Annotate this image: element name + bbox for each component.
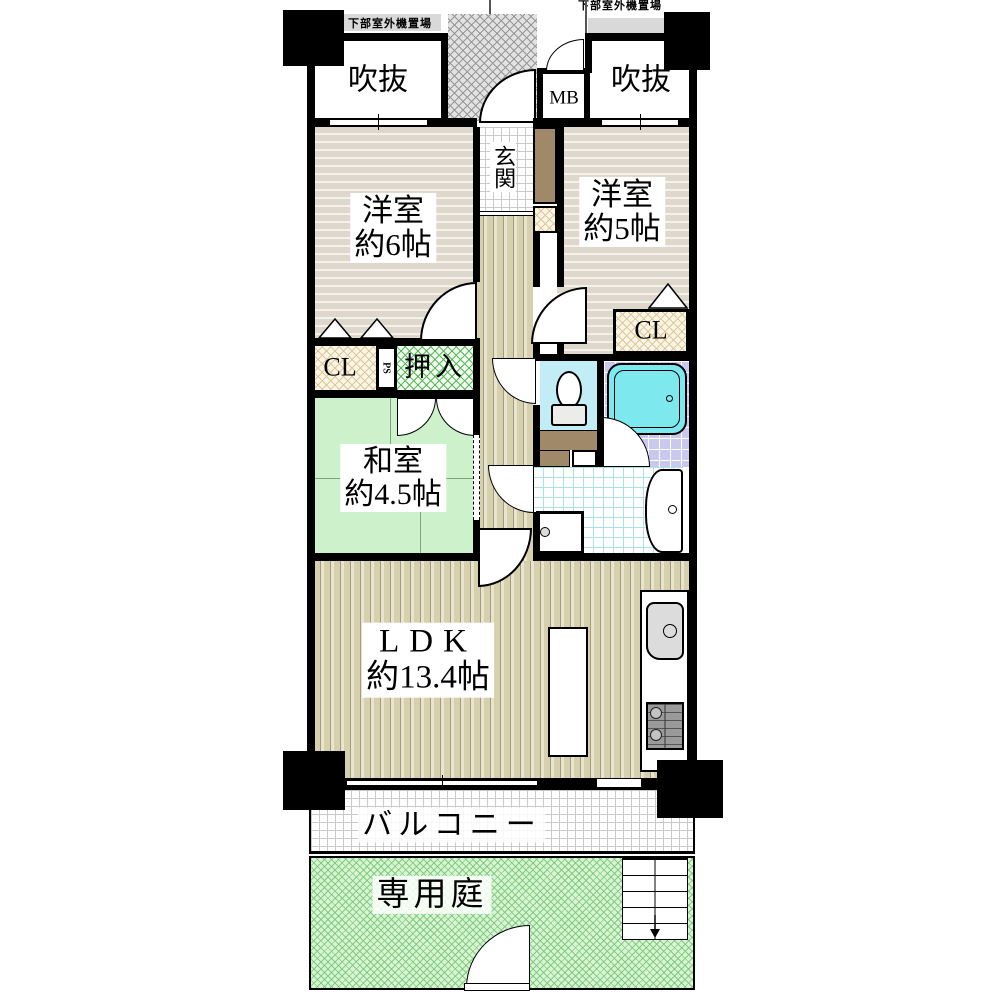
label-western-5-size: 約5帖 (583, 211, 661, 246)
window-tick (378, 114, 379, 130)
pillar (283, 751, 345, 810)
wall (441, 33, 448, 127)
wall (307, 390, 480, 398)
folding-door-triangle (648, 283, 688, 309)
label-void-left: 吹抜 (344, 63, 412, 98)
pillar (664, 12, 710, 70)
stairs-down-arrow (648, 915, 662, 939)
wall (473, 127, 480, 282)
wall (473, 340, 480, 435)
label-western-6-name: 洋室 (362, 193, 424, 228)
wall (307, 553, 480, 561)
folding-door-triangle (360, 318, 394, 339)
pillar (283, 10, 344, 66)
label-closet-left: CL (319, 353, 360, 384)
folding-door-triangle (318, 318, 352, 339)
label-ldk-size: 約13.4帖 (366, 660, 490, 696)
toilet-counter (540, 430, 597, 450)
bathtub-drain (666, 395, 673, 402)
garden-gate-leaf (464, 983, 530, 991)
basin-faucet (668, 505, 677, 514)
label-western-6: 洋室 約6帖 (350, 193, 436, 263)
pillar (657, 760, 723, 818)
label-japanese-size: 約4.5帖 (344, 478, 442, 511)
mb-door-arc (546, 39, 584, 71)
label-japanese-name: 和室 (363, 445, 423, 478)
label-pipe-space: PS (377, 361, 396, 375)
label-closet-right: CL (630, 316, 671, 347)
washer-cabinet-white (572, 450, 597, 467)
kitchen-sink-tap (663, 624, 677, 638)
label-meter-box: MB (545, 88, 583, 111)
label-ldk-name: LDK (379, 624, 477, 660)
label-garden: 専用庭 (373, 876, 492, 914)
wash-basin (645, 469, 683, 553)
japanese-sliding-door (473, 435, 480, 520)
wall-w5-left-upper (557, 127, 564, 287)
w5-left-white-strip (540, 233, 557, 287)
wall (533, 354, 697, 361)
floor-plan: 下部室外機置場 下部室外機置場 MB (0, 0, 1000, 1000)
wall (533, 405, 540, 467)
genkan-step-line (477, 211, 533, 212)
western5-door-arc (531, 287, 587, 344)
label-balcony: バルコニー (358, 808, 545, 843)
wall (307, 33, 315, 790)
kitchen-island-counter (548, 627, 588, 757)
genkan-storage (533, 206, 557, 233)
window-tick (640, 114, 641, 130)
outdoor-unit-note-right: 下部室外機置場 (578, 0, 662, 13)
stove-burner (650, 707, 662, 719)
toilet-tank (551, 404, 587, 426)
label-ldk: LDK 約13.4帖 (362, 623, 494, 698)
label-void-right: 吹抜 (607, 63, 675, 98)
wall (597, 354, 604, 467)
washing-machine-tap (540, 527, 550, 537)
boundary-line (585, 0, 587, 33)
label-entrance: 玄関 (490, 142, 516, 192)
washer-cabinet-brown (537, 450, 570, 467)
shoe-cabinet (533, 127, 557, 204)
balcony-door-gap (597, 779, 641, 787)
wall (533, 233, 540, 287)
label-western-6-size: 約6帖 (354, 227, 432, 262)
wall (533, 553, 697, 561)
outdoor-strip-right (588, 18, 664, 33)
label-oshiire: 押入 (400, 352, 470, 384)
label-western-5: 洋室 約5帖 (579, 177, 665, 247)
label-western-5-name: 洋室 (591, 177, 653, 212)
stove-burner (650, 729, 662, 741)
wall (585, 33, 592, 73)
outdoor-unit-note-left: 下部室外機置場 (348, 15, 432, 31)
wall (689, 33, 697, 780)
label-japanese-room: 和室 約4.5帖 (340, 444, 446, 512)
